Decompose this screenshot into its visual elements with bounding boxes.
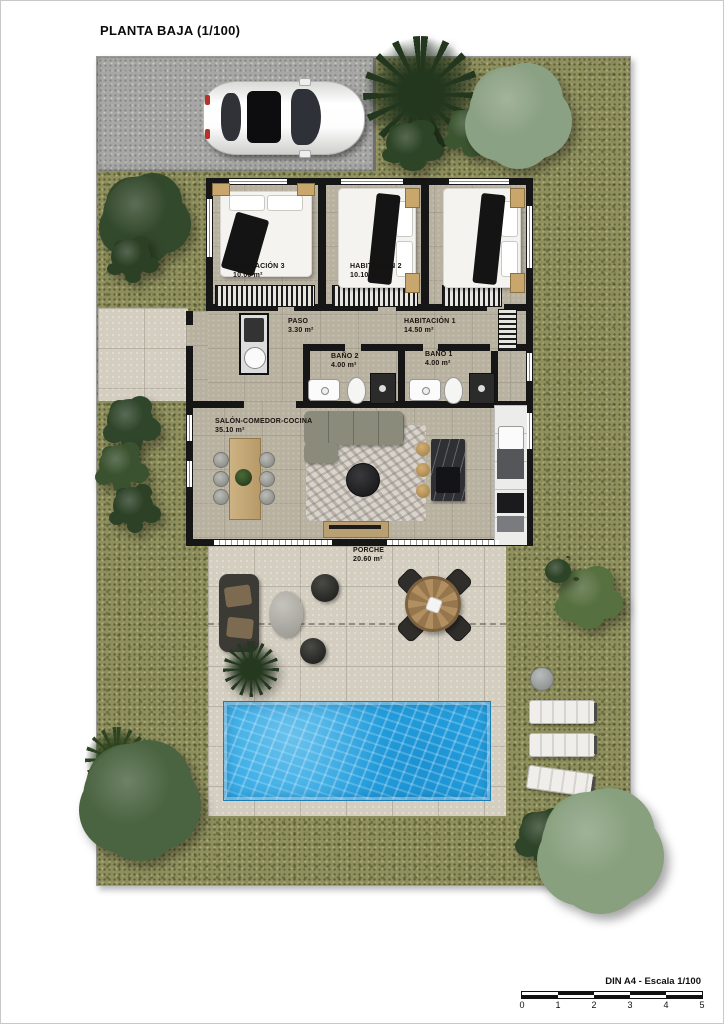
tv xyxy=(329,525,381,529)
bush xyxy=(107,399,153,443)
tv-unit xyxy=(323,521,389,538)
bush xyxy=(99,445,141,485)
wall xyxy=(398,351,405,404)
bar-stool xyxy=(416,463,430,477)
bush xyxy=(113,487,153,525)
dining-chair xyxy=(213,471,229,487)
window xyxy=(527,413,532,449)
wall xyxy=(303,344,345,351)
kitchen-island xyxy=(431,439,465,501)
dining-chair xyxy=(213,489,229,505)
car-taillight xyxy=(205,95,210,105)
room-name: HABITACIÓN 1 xyxy=(404,317,456,326)
patio-table xyxy=(405,576,461,632)
window xyxy=(229,179,287,184)
sofa-chaise xyxy=(304,443,338,463)
room-name: PORCHE xyxy=(353,546,384,555)
wall xyxy=(186,311,193,325)
kitchen-sink xyxy=(498,426,524,450)
cooktop xyxy=(436,467,460,493)
pouf xyxy=(311,574,339,602)
cushion xyxy=(224,584,253,607)
car-mirror-left xyxy=(299,78,311,86)
scale-tick: 5 xyxy=(699,1000,704,1010)
cushion xyxy=(226,617,254,640)
toilet xyxy=(347,377,366,404)
bar-stool xyxy=(416,442,430,456)
room-label-porche: PORCHE 20.60 m² xyxy=(353,546,384,565)
room-label-bano-1: BAÑO 1 4.00 m² xyxy=(425,350,453,369)
nightstand xyxy=(297,183,315,196)
room-area: 4.00 m² xyxy=(425,359,453,368)
floor-plan-page: PLANTA BAJA (1/100) xyxy=(0,0,724,1024)
wall xyxy=(318,178,326,311)
scale-segment xyxy=(558,992,594,998)
car-taillight xyxy=(205,129,210,139)
room-name: BAÑO 1 xyxy=(425,350,453,359)
wall xyxy=(186,346,193,408)
scale-segment xyxy=(630,992,666,998)
wardrobe xyxy=(442,285,502,307)
window xyxy=(527,206,532,268)
bush xyxy=(545,559,571,583)
room-label-habitacion-2: HABITACIÓN 2 10.10 m² xyxy=(350,262,402,281)
nightstand xyxy=(510,273,525,293)
pillow xyxy=(229,195,265,211)
bathroom-sink xyxy=(409,379,441,401)
dining-chair xyxy=(259,471,275,487)
wardrobe xyxy=(498,309,517,351)
bar-stool xyxy=(416,484,430,498)
kitchen-counter xyxy=(494,405,527,545)
patio-table-center xyxy=(425,596,443,614)
outdoor-coffee-table xyxy=(269,591,303,637)
sliding-door xyxy=(214,540,332,545)
scale-segment xyxy=(594,992,630,998)
coffee-table xyxy=(346,463,380,497)
car-sunroof xyxy=(247,91,281,143)
room-name: HABITACIÓN 2 xyxy=(350,262,402,271)
page-title: PLANTA BAJA (1/100) xyxy=(100,23,240,38)
nightstand xyxy=(212,183,230,196)
room-area: 14.50 m² xyxy=(404,326,456,335)
room-name: BAÑO 2 xyxy=(331,352,359,361)
scale-tick: 4 xyxy=(663,1000,668,1010)
scale-segment xyxy=(522,992,558,998)
nightstand xyxy=(405,188,420,208)
sun-lounger xyxy=(529,733,595,757)
room-area: 35.10 m² xyxy=(215,426,312,435)
room-area: 3.30 m² xyxy=(288,326,314,335)
appliance xyxy=(497,516,524,532)
palm-tree xyxy=(223,641,279,697)
garden-stone-table xyxy=(530,667,554,691)
tree xyxy=(541,791,656,906)
scale-tick: 3 xyxy=(627,1000,632,1010)
room-label-salon: SALÓN-COMEDOR-COCINA 35.10 m² xyxy=(215,417,312,436)
swimming-pool xyxy=(223,701,491,801)
car-mirror-right xyxy=(299,150,311,158)
shower xyxy=(469,373,495,404)
room-area: 10.00 m² xyxy=(233,271,285,280)
pouf xyxy=(300,638,326,664)
bathroom-sink xyxy=(308,379,340,401)
scale-label: DIN A4 - Escala 1/100 xyxy=(481,976,701,987)
bush xyxy=(386,123,436,163)
table-plant xyxy=(235,469,252,486)
room-label-habitacion-3: HABITACIÓN 3 10.00 m² xyxy=(233,262,285,281)
room-area: 20.60 m² xyxy=(353,555,384,564)
sofa xyxy=(304,411,404,445)
nightstand xyxy=(405,273,420,293)
toilet xyxy=(444,377,463,404)
washing-machine xyxy=(244,318,264,342)
scale-bar xyxy=(521,991,703,999)
dining-chair xyxy=(259,489,275,505)
wall xyxy=(421,178,429,311)
oven xyxy=(497,493,524,513)
car xyxy=(203,81,363,153)
window xyxy=(341,179,403,184)
sun-lounger xyxy=(529,700,595,724)
room-area: 4.00 m² xyxy=(331,361,359,370)
window xyxy=(187,415,192,441)
sliding-door xyxy=(387,540,499,545)
window xyxy=(449,179,509,184)
car-rear-window xyxy=(221,93,241,141)
scale-tick: 2 xyxy=(591,1000,596,1010)
shower xyxy=(370,373,396,404)
room-area: 10.10 m² xyxy=(350,271,402,280)
room-label-habitacion-1: HABITACIÓN 1 14.50 m² xyxy=(404,317,456,336)
scale-tick: 1 xyxy=(555,1000,560,1010)
car-windshield xyxy=(291,89,321,145)
pillow xyxy=(267,195,303,211)
appliance xyxy=(497,449,524,479)
window xyxy=(527,353,532,381)
room-name: HABITACIÓN 3 xyxy=(233,262,285,271)
entry-path xyxy=(98,308,188,401)
wall xyxy=(361,344,423,351)
scale-segment xyxy=(666,992,702,998)
dining-chair xyxy=(213,452,229,468)
pillow xyxy=(501,241,518,277)
window xyxy=(187,461,192,487)
window xyxy=(207,199,212,257)
scale-tick: 0 xyxy=(519,1000,524,1010)
utility-sink xyxy=(244,347,266,369)
tree xyxy=(469,66,564,161)
dining-chair xyxy=(259,452,275,468)
utility-closet xyxy=(239,313,269,375)
wardrobe xyxy=(215,285,315,307)
room-name: SALÓN-COMEDOR-COCINA xyxy=(215,417,312,426)
tree xyxy=(83,743,193,853)
room-name: PASO xyxy=(288,317,314,326)
nightstand xyxy=(510,188,525,208)
bush xyxy=(111,239,151,275)
room-label-paso: PASO 3.30 m² xyxy=(288,317,314,336)
wall xyxy=(186,401,244,408)
room-label-bano-2: BAÑO 2 4.00 m² xyxy=(331,352,359,371)
